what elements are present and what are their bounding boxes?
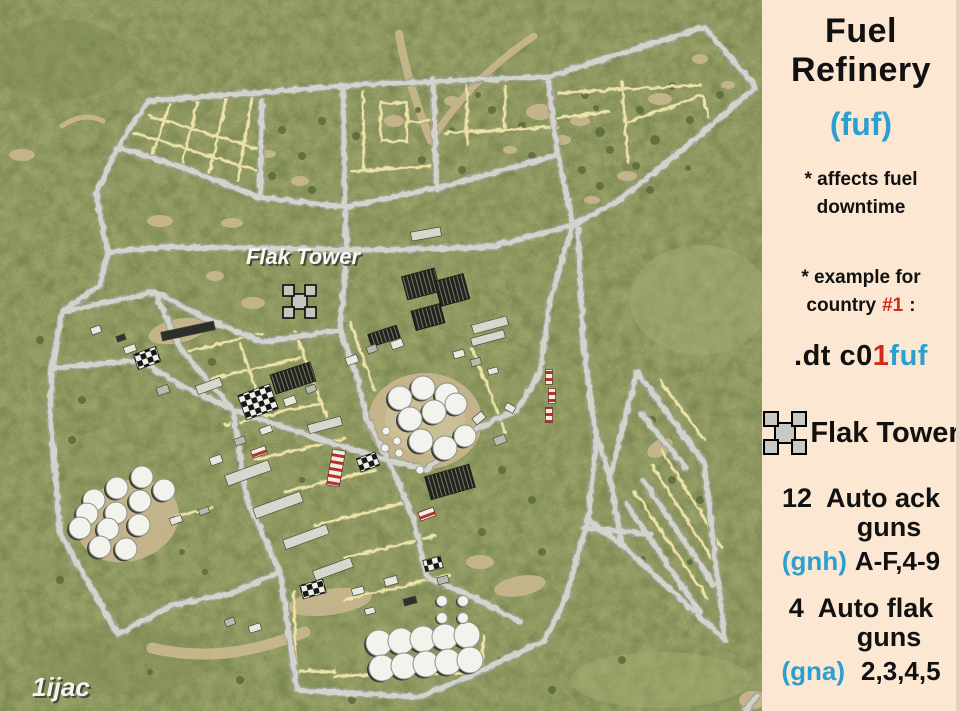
page-title: Fuel Refinery [762,12,960,90]
ack-guns-entry: 12Auto ack guns (gnh)A-F,4-9 [762,484,960,576]
ack-guns-name: Auto ack [826,483,940,513]
flak-guns-entry: 4Auto flak guns (gna)2,3,4,5 [762,594,960,686]
ack-guns-code: (gnh) [782,546,847,576]
flak-guns-code: (gna) [781,656,845,686]
ack-guns-count: 12 [782,483,812,513]
refinery-map-svg: Flak Tower Flak Tower 1ijac 1ijac [0,0,762,711]
ack-guns-slots: A-F,4-9 [855,546,940,576]
legend-flak-label: Flak Tower [810,417,959,450]
note-example: * example for country#1: [762,264,960,320]
flak-guns-name2: guns [762,623,960,652]
legend-flak-tower: Flak Tower [762,410,960,456]
title-line-2: Refinery [762,51,960,90]
flak-guns-count: 4 [789,593,804,623]
watermark: 1ijac [32,672,90,702]
facility-code: (fuf) [762,106,960,143]
flak-guns-name: Auto flak [818,593,934,623]
note-effect: * affects fuel downtime [762,166,960,222]
flak-guns-slots: 2,3,4,5 [861,656,941,686]
info-panel: Fuel Refinery (fuf) * affects fuel downt… [762,0,960,711]
flak-tower-label: Flak Tower [246,244,362,269]
flak-tower-icon [762,410,808,456]
refinery-map: Flak Tower Flak Tower 1ijac 1ijac [0,0,762,711]
screenshot: Flak Tower Flak Tower 1ijac 1ijac Fuel R… [0,0,960,711]
ack-guns-name2: guns [762,513,960,542]
downtime-command: .dt c01fuf [762,340,960,373]
title-line-1: Fuel [762,12,960,51]
